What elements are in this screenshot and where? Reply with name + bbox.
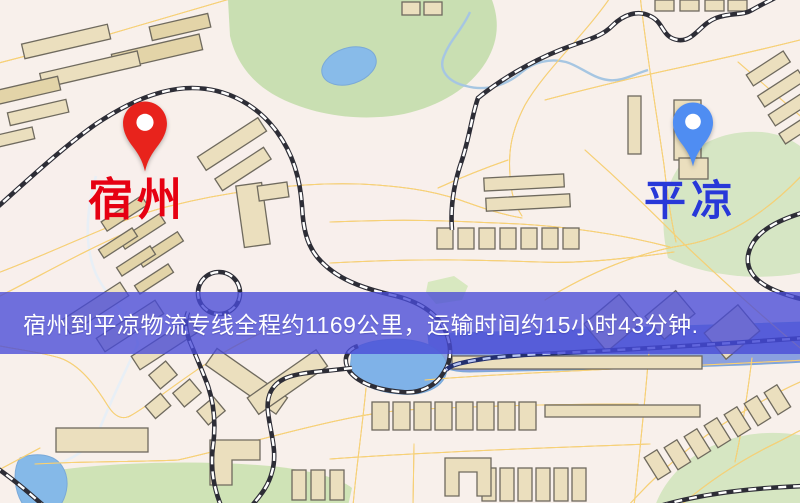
map-screenshot: 宿州 平凉 宿州到平凉物流专线全程约1169公里，运输时间约15小时43分钟. — [0, 0, 800, 503]
origin-pin-icon[interactable] — [122, 100, 168, 174]
route-info-banner: 宿州到平凉物流专线全程约1169公里，运输时间约15小时43分钟. — [0, 292, 800, 354]
map-canvas[interactable] — [0, 0, 800, 503]
route-info-text: 宿州到平凉物流专线全程约1169公里，运输时间约15小时43分钟. — [23, 306, 699, 340]
destination-city-label: 平凉 — [644, 181, 738, 223]
destination-pin-icon[interactable] — [672, 101, 714, 169]
origin-city-label: 宿州 — [88, 178, 186, 223]
